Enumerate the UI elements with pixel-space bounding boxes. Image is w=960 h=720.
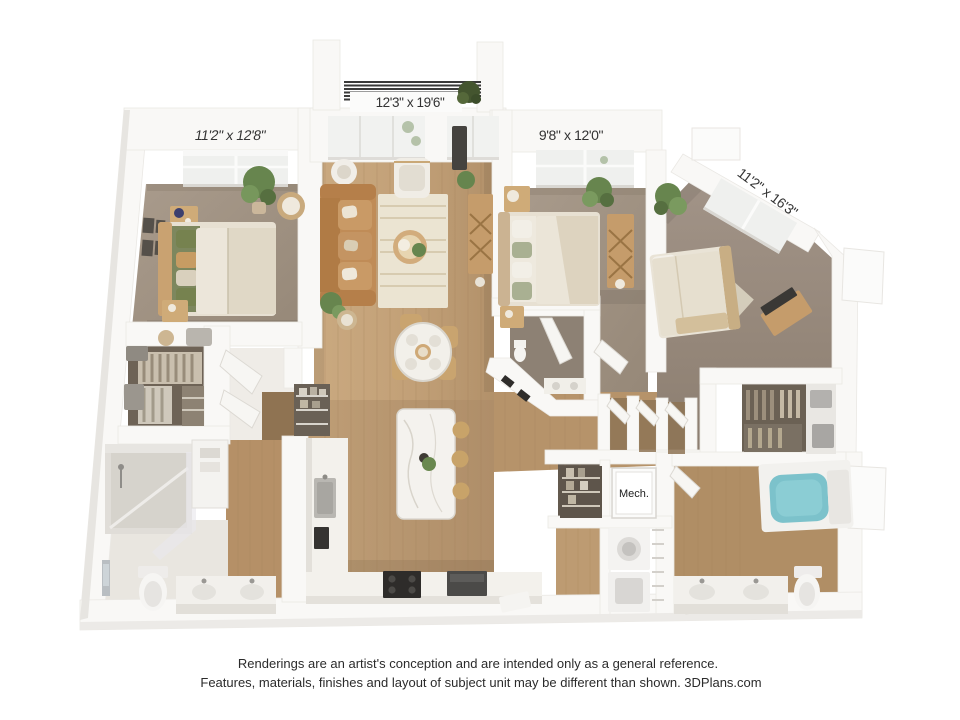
svg-text:Features, materials, finishes: Features, materials, finishes and layout… [200, 675, 761, 690]
svg-text:Renderings are an artist's con: Renderings are an artist's conception an… [238, 656, 718, 671]
svg-text:12'3" x 19'6": 12'3" x 19'6" [376, 95, 445, 110]
svg-text:Mech.: Mech. [619, 488, 649, 500]
svg-text:11'2" x 12'8": 11'2" x 12'8" [194, 127, 268, 143]
svg-text:9'8" x 12'0": 9'8" x 12'0" [539, 127, 604, 143]
